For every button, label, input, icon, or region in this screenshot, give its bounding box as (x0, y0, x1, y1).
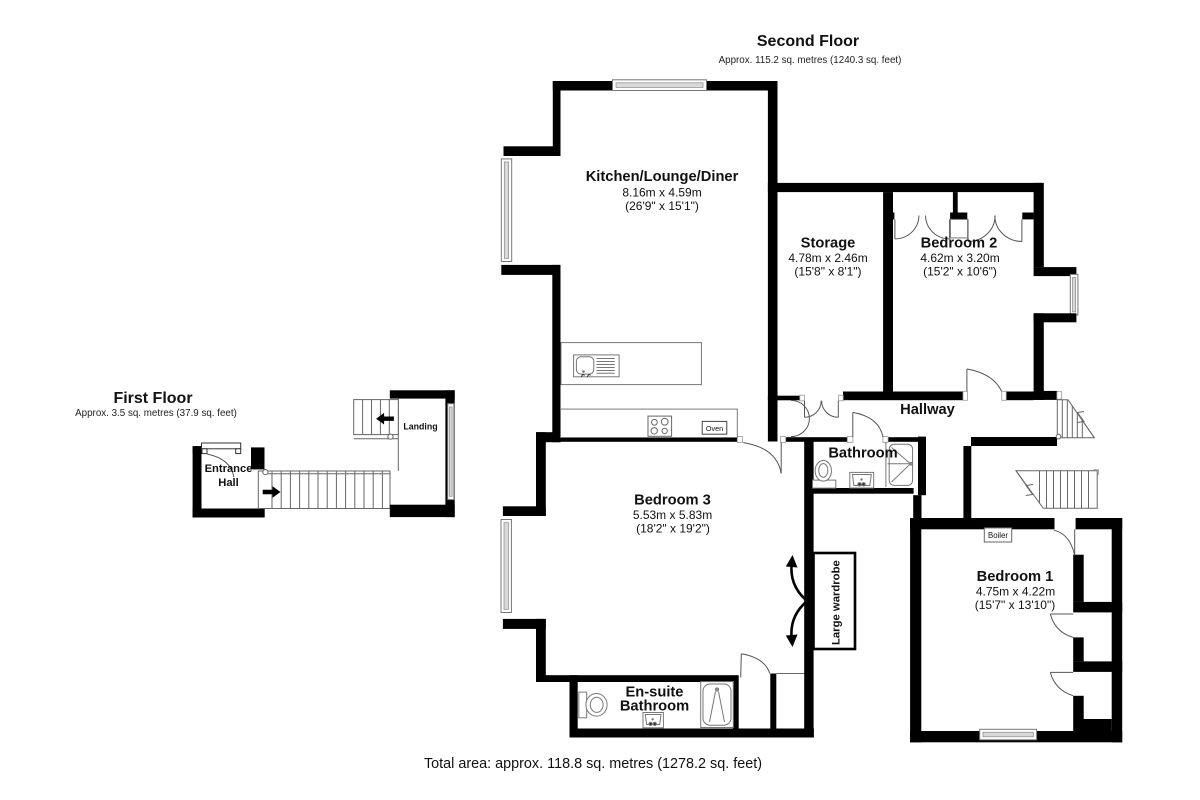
svg-text:(15'7" x 13'10"): (15'7" x 13'10") (975, 598, 1055, 612)
svg-text:Large wardrobe: Large wardrobe (831, 560, 843, 645)
svg-text:(18'2" x 19'2"): (18'2" x 19'2") (636, 522, 710, 536)
svg-text:Bedroom 2: Bedroom 2 (921, 236, 998, 252)
svg-text:First Floor: First Floor (113, 390, 192, 407)
svg-text:Bedroom 3: Bedroom 3 (634, 493, 711, 509)
svg-text:Approx. 3.5 sq. metres (37.9 s: Approx. 3.5 sq. metres (37.9 sq. feet) (75, 408, 237, 419)
svg-text:8.16m x 4.59m: 8.16m x 4.59m (622, 186, 701, 200)
svg-text:Second Floor: Second Floor (757, 33, 859, 50)
svg-text:Hall: Hall (218, 477, 239, 489)
svg-text:(15'8" x 8'1"): (15'8" x 8'1") (794, 265, 861, 279)
svg-text:Entrance: Entrance (205, 463, 253, 475)
svg-text:Boiler: Boiler (988, 531, 1008, 540)
svg-text:Total area: approx. 118.8 sq.: Total area: approx. 118.8 sq. metres (12… (424, 756, 762, 772)
svg-text:Bathroom: Bathroom (620, 699, 689, 715)
svg-text:(26'9" x 15'1"): (26'9" x 15'1") (625, 199, 699, 213)
svg-text:(15'2" x 10'6"): (15'2" x 10'6") (923, 265, 997, 279)
svg-text:4.78m x 2.46m: 4.78m x 2.46m (788, 251, 867, 265)
svg-text:Bedroom 1: Bedroom 1 (977, 569, 1054, 585)
svg-text:4.75m x 4.22m: 4.75m x 4.22m (976, 585, 1055, 599)
svg-text:Approx. 115.2 sq. metres (1240: Approx. 115.2 sq. metres (1240.3 sq. fee… (719, 55, 902, 66)
svg-text:Oven: Oven (706, 424, 723, 433)
svg-text:Hallway: Hallway (900, 402, 956, 418)
svg-text:Bathroom: Bathroom (828, 446, 897, 462)
svg-text:4.62m x 3.20m: 4.62m x 3.20m (920, 251, 999, 265)
svg-text:5.53m x 5.83m: 5.53m x 5.83m (633, 508, 712, 522)
svg-text:Storage: Storage (801, 236, 856, 252)
svg-text:Kitchen/Lounge/Diner: Kitchen/Lounge/Diner (586, 169, 739, 185)
svg-text:Landing: Landing (403, 422, 437, 432)
